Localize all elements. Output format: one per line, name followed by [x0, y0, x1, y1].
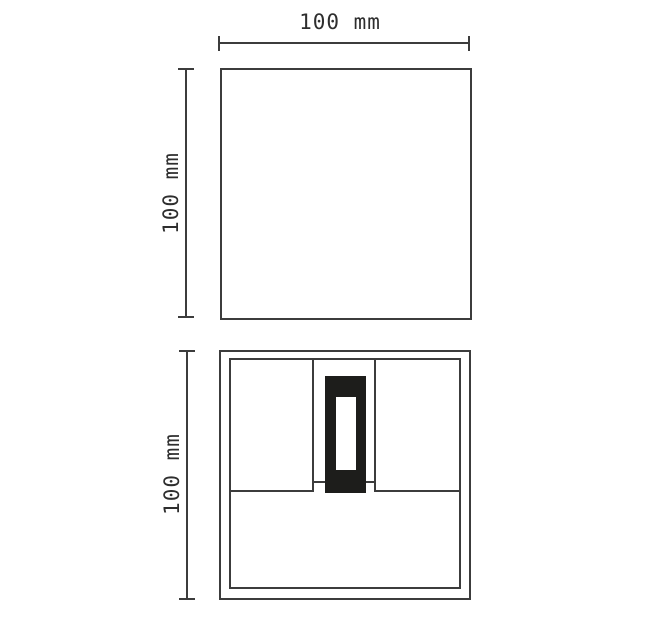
- front-width-dimension-label: 100 mm: [260, 11, 420, 33]
- back-height-dimension-tick-bottom: [179, 598, 195, 600]
- front-width-dimension-tick-left: [218, 36, 220, 51]
- front-height-dimension-tick-bottom: [178, 316, 194, 318]
- front-height-dimension-label: 100 mm: [160, 113, 182, 273]
- back-view-divider-right: [374, 490, 461, 492]
- front-width-dimension-line: [219, 42, 470, 44]
- back-view-center-column-right-line: [374, 358, 376, 492]
- mounting-bracket: [325, 376, 366, 493]
- back-height-dimension-line: [186, 350, 188, 600]
- back-view-center-column-left-line: [312, 358, 314, 492]
- front-height-dimension-tick-top: [178, 68, 194, 70]
- back-height-dimension-label: 100 mm: [161, 394, 183, 554]
- technical-drawing-canvas: 100 mm 100 mm 100 mm: [0, 0, 653, 636]
- front-width-dimension-tick-right: [468, 36, 470, 51]
- front-height-dimension-line: [185, 68, 187, 318]
- back-view-notch-left: [312, 481, 326, 483]
- front-view-outline: [220, 68, 472, 320]
- back-height-dimension-tick-top: [179, 350, 195, 352]
- back-view-divider-left: [229, 490, 314, 492]
- mounting-bracket-cutout: [336, 397, 356, 470]
